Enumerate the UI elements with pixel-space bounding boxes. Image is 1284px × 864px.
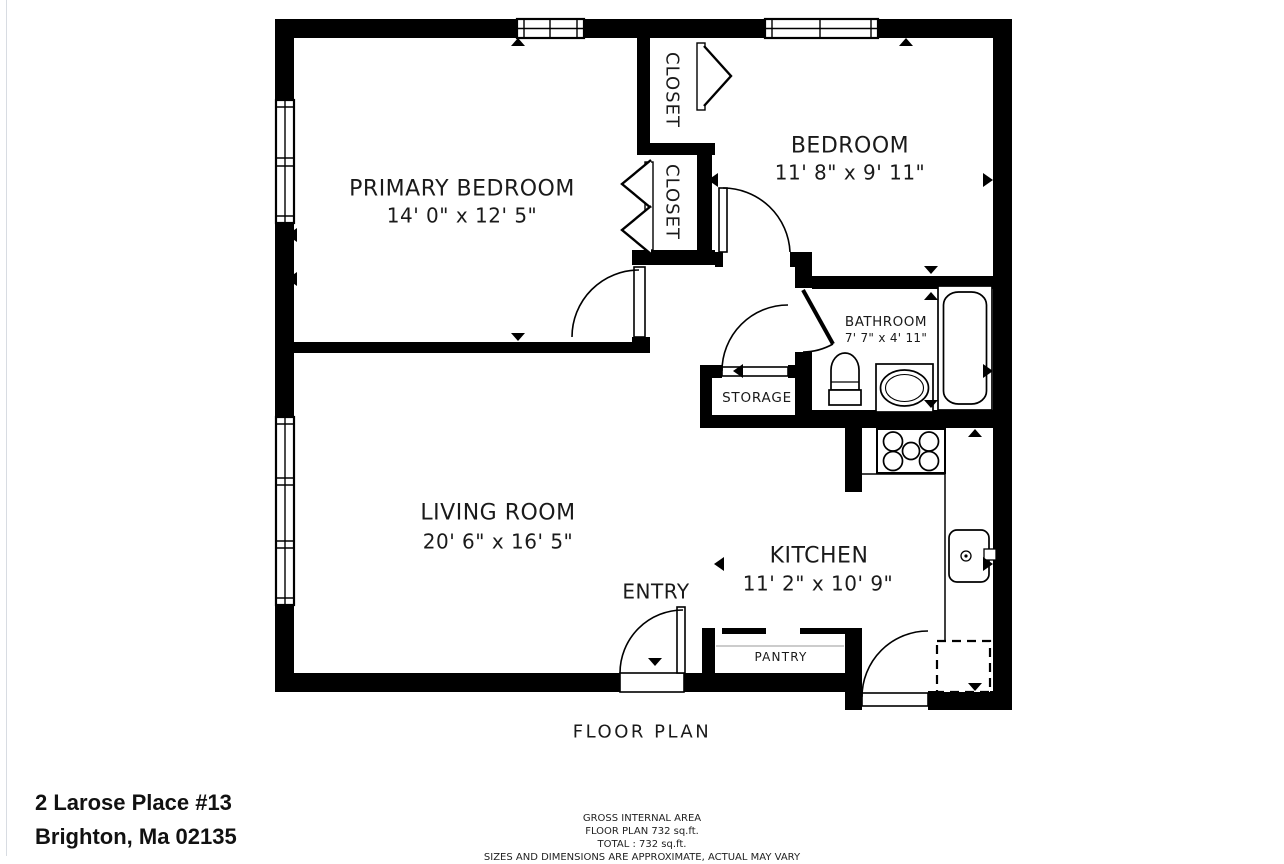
primary-bedroom-dimensions: 14' 0" x 12' 5" xyxy=(387,205,538,228)
wall-pantry-top-seg1 xyxy=(722,628,766,634)
bathroom-fixtures xyxy=(829,286,992,412)
wall-closet-right xyxy=(697,148,712,265)
bedroom-dimensions: 11' 8" x 9' 11" xyxy=(775,162,926,185)
closet-bottom-label: CLOSET xyxy=(661,164,682,240)
bathroom-door xyxy=(803,290,833,352)
wall-bedroom-bottom-left xyxy=(715,252,723,267)
kitchen-counter-edge xyxy=(862,474,945,640)
wall-closet-left xyxy=(637,19,650,148)
disclaimer-text: SIZES AND DIMENSIONS ARE APPROXIMATE, AC… xyxy=(0,851,1284,864)
wall-right xyxy=(993,19,1012,710)
closet-top-bifold-door xyxy=(697,43,731,110)
wall-bottom-kitchen xyxy=(928,691,1012,710)
window-left-living xyxy=(276,417,294,605)
closet-top-label: CLOSET xyxy=(661,52,682,128)
wall-hall-bath-upper xyxy=(795,252,812,288)
wall-bottom-living-left xyxy=(275,673,620,692)
entry-label: ENTRY xyxy=(622,581,689,604)
stove xyxy=(877,429,945,473)
arrow-up-primary-top xyxy=(511,38,525,46)
kitchen-label: KITCHEN xyxy=(770,543,869,568)
storage-door xyxy=(722,305,788,376)
floor-plan-area-value: FLOOR PLAN 732 sq.ft. xyxy=(0,825,1284,838)
window-left-primary xyxy=(276,100,294,223)
wall-pantry-right xyxy=(845,628,862,692)
closet-bottom-bifold-door xyxy=(622,160,653,254)
bathroom-label: BATHROOM xyxy=(845,315,927,331)
arrow-down-bedroom-bottom xyxy=(924,266,938,274)
window-top-bedroom xyxy=(765,19,878,38)
wall-storage-top-right xyxy=(788,365,812,378)
bathroom-dimensions: 7' 7" x 4' 11" xyxy=(845,332,927,346)
arrow-left-kitchen xyxy=(714,557,724,571)
primary-bedroom-door xyxy=(572,267,645,337)
living-room-dimensions: 20' 6" x 16' 5" xyxy=(423,531,574,554)
primary-bedroom-label: PRIMARY BEDROOM xyxy=(349,176,575,201)
gross-internal-area-label: GROSS INTERNAL AREA xyxy=(0,812,1284,825)
bedroom-label: BEDROOM xyxy=(791,133,909,158)
floor-plan-page: PRIMARY BEDROOM 14' 0" x 12' 5" BEDROOM … xyxy=(0,0,1284,856)
floor-plan-title: FLOOR PLAN xyxy=(573,723,711,744)
kitchen-sink xyxy=(949,530,996,582)
pantry-label: PANTRY xyxy=(754,651,807,665)
wall-primary-living-divider xyxy=(275,342,643,353)
window-top-primary xyxy=(517,19,584,38)
bathtub xyxy=(938,286,992,410)
bedroom-door xyxy=(719,188,790,252)
kitchen-door xyxy=(862,631,928,706)
toilet xyxy=(829,353,861,405)
storage-label: STORAGE xyxy=(722,391,792,407)
total-area-value: TOTAL : 732 sq.ft. xyxy=(0,838,1284,851)
wall-pantry-top-seg2 xyxy=(800,628,845,634)
bathroom-sink xyxy=(876,364,933,412)
refrigerator-dashed-box xyxy=(937,641,990,692)
entry-door xyxy=(620,607,685,692)
arrow-right-bedroom xyxy=(983,173,993,187)
living-room-label: LIVING ROOM xyxy=(420,500,575,525)
arrow-up-kitchen-top xyxy=(968,429,982,437)
kitchen-dimensions: 11' 2" x 10' 9" xyxy=(743,573,894,596)
arrow-down-primary-bottom xyxy=(511,333,525,341)
arrow-up-bathroom-top xyxy=(924,292,938,300)
wall-kitchen-left xyxy=(845,428,862,492)
wall-storage-bottom xyxy=(700,415,812,428)
arrow-down-entry xyxy=(648,658,662,666)
arrow-up-bedroom-top xyxy=(899,38,913,46)
wall-pantry-left xyxy=(702,628,715,692)
